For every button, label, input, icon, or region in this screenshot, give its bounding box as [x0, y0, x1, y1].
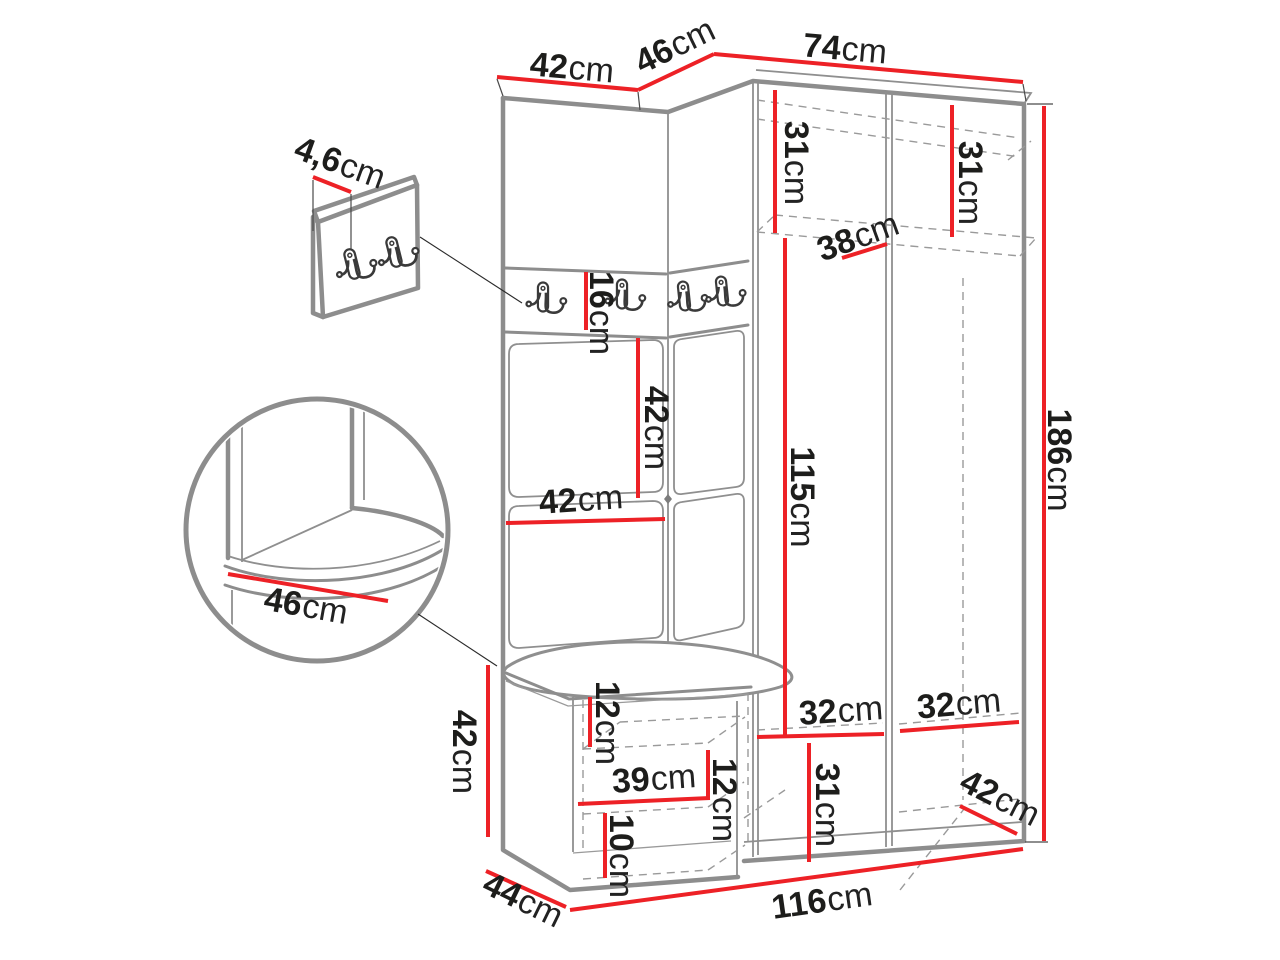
dim-label-bottom-32-left: 32cm [798, 689, 885, 733]
dim-label-panel-42-v: 42cm [637, 386, 675, 470]
dim-label-bench-10: 10cm [602, 814, 640, 898]
wardrobe-left-edge [753, 82, 758, 857]
coat-hook-icon [526, 283, 566, 313]
angled-cushion-upper [674, 331, 744, 494]
dim-label-bench-12-right: 12cm [705, 758, 743, 842]
coat-hook-icon [704, 274, 747, 308]
tufting-button [664, 494, 672, 504]
coat-hooks [526, 274, 746, 313]
dim-label-top-74: 74cm [801, 26, 888, 71]
coat-hook-icon [666, 279, 709, 313]
dim-label-bench-39: 39cm [611, 757, 698, 801]
furniture-dimension-diagram: 42cm 46cm 74cm 4,6cm 16cm 42cm 42cm 31cm… [0, 0, 1280, 960]
bench-floor-line [573, 841, 731, 853]
dim-label-depth-44: 44cm [477, 864, 569, 935]
angled-cushion-lower [674, 494, 744, 641]
dim-label-bench-42: 42cm [445, 710, 483, 794]
dim-label-shelf-31-right: 31cm [951, 141, 989, 225]
diagram-canvas: 42cm 46cm 74cm 4,6cm 16cm 42cm 42cm 31cm… [0, 0, 1280, 960]
interior-corner-hidden-edges [748, 278, 963, 845]
detail-leader-line [418, 614, 497, 666]
hook-panel-detail [313, 177, 522, 317]
dim-label-height-186: 186cm [1040, 408, 1078, 511]
dim-line-bottom-32-left [757, 734, 884, 737]
dim-label-bottom-31: 31cm [808, 763, 846, 847]
dim-label-strip-16: 16cm [582, 271, 620, 355]
dim-label-inner-115: 115cm [783, 446, 821, 547]
dim-label-shelf-31-left: 31cm [777, 121, 815, 205]
unit-top-right-bottom-edge [503, 81, 1024, 861]
hook-panel-leader-line [420, 237, 522, 303]
wardrobe-plinth-line [744, 822, 1022, 842]
dim-label-shelf-38: 38cm [812, 205, 904, 269]
dim-label-panel-42-h: 42cm [538, 478, 625, 522]
dim-line-panel-42-h [506, 519, 665, 523]
dim-line-bench-39 [578, 798, 710, 804]
dim-label-top-42: 42cm [528, 45, 615, 90]
dim-label-bench-12-top: 12cm [588, 681, 626, 765]
dim-label-bottom-32-right: 32cm [915, 681, 1002, 726]
